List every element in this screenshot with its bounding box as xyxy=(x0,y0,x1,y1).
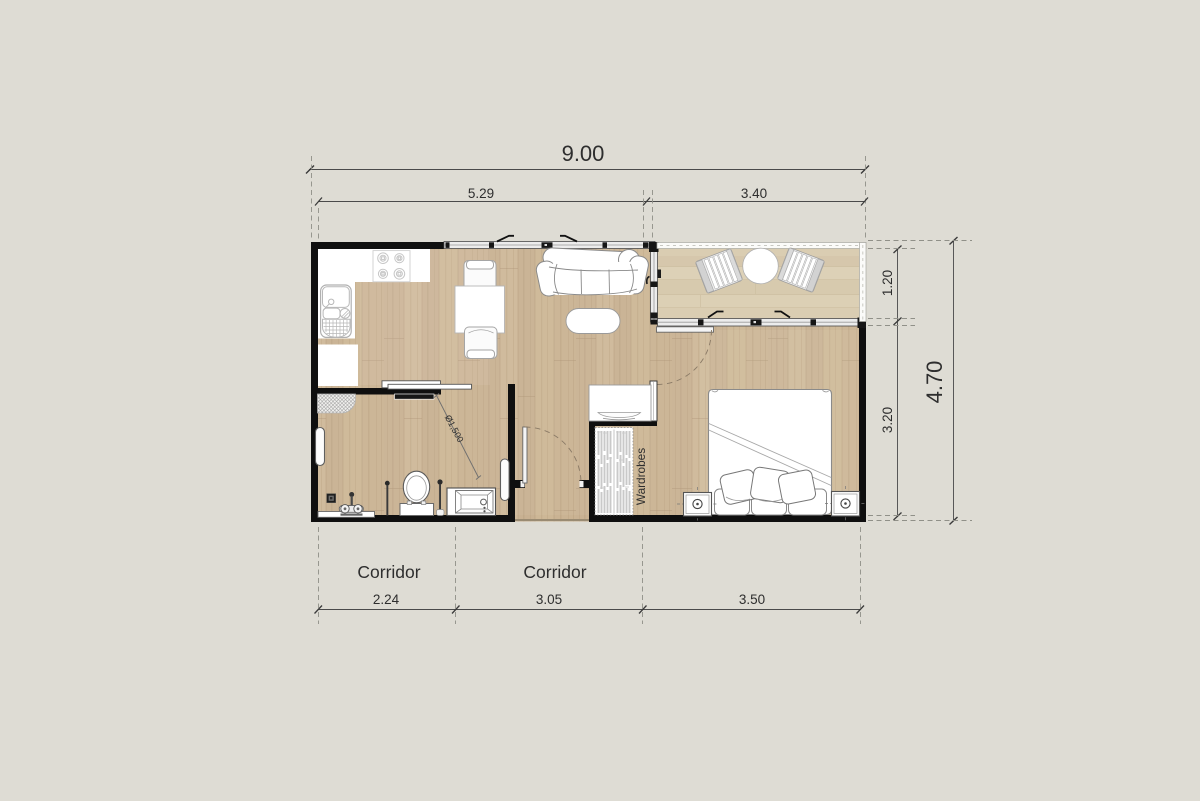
svg-text:2.24: 2.24 xyxy=(373,592,400,607)
svg-text:Corridor: Corridor xyxy=(523,562,586,582)
svg-text:Corridor: Corridor xyxy=(357,562,420,582)
svg-text:9.00: 9.00 xyxy=(562,141,605,166)
svg-text:4.70: 4.70 xyxy=(922,361,947,404)
svg-text:5.29: 5.29 xyxy=(468,186,494,201)
svg-text:3.05: 3.05 xyxy=(536,592,562,607)
svg-text:3.20: 3.20 xyxy=(880,407,895,433)
svg-text:3.50: 3.50 xyxy=(739,592,765,607)
svg-text:3.40: 3.40 xyxy=(741,186,767,201)
svg-text:Wardrobes: Wardrobes xyxy=(634,448,648,505)
svg-text:1.20: 1.20 xyxy=(880,270,895,296)
